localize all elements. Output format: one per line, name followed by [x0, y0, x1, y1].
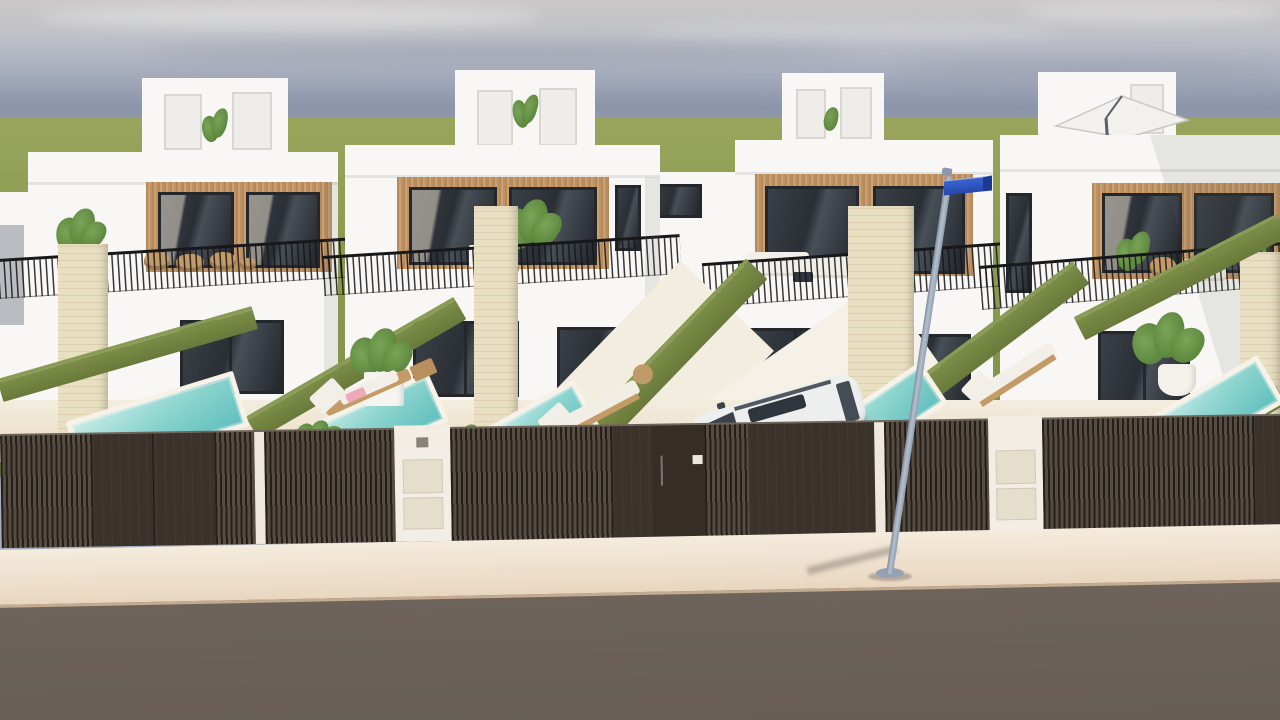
penthouse-door	[796, 89, 826, 139]
gate-pillar	[394, 425, 452, 542]
penthouse-door	[164, 94, 202, 150]
lamppost	[862, 172, 1002, 592]
penthouse-door	[477, 90, 513, 146]
plant-leaf	[210, 107, 230, 139]
pillar-panel	[403, 497, 443, 530]
penthouse-door	[539, 88, 577, 146]
window-mullion	[464, 324, 467, 394]
fence-slats	[264, 430, 396, 544]
pillar-plaque	[416, 437, 428, 447]
scene-architectural-render	[0, 0, 1280, 720]
planter-pot	[1158, 364, 1196, 396]
fence-slats	[0, 435, 94, 548]
plant-leaf	[520, 93, 541, 125]
fence-slats	[1042, 416, 1256, 531]
penthouse-door	[840, 87, 872, 139]
cloud	[640, 22, 1060, 40]
fence-slats	[214, 432, 256, 545]
cloud-dark	[150, 44, 850, 60]
lamppost-finial	[941, 167, 952, 176]
gate-handle	[661, 456, 663, 486]
fence-panel	[612, 426, 654, 539]
fence-gate	[92, 433, 216, 547]
penthouse-1	[142, 78, 288, 154]
pillar-panel	[403, 459, 444, 494]
penthouse-door	[232, 92, 272, 150]
lamppost-pole	[886, 176, 952, 575]
fence-panel	[1254, 416, 1280, 528]
pillar-panel	[996, 488, 1036, 521]
fence-slats	[704, 424, 750, 537]
gate-plaque	[693, 455, 703, 464]
side-table	[409, 358, 437, 382]
fence-gate	[748, 422, 876, 536]
fence-gate	[652, 425, 706, 538]
gate-seam	[152, 434, 155, 546]
cloud	[40, 4, 540, 30]
stone-pillar	[474, 206, 518, 442]
cloud	[1020, 2, 1280, 22]
fence-slats	[450, 426, 614, 541]
penthouse-2	[455, 70, 595, 150]
penthouse-3	[782, 73, 884, 143]
